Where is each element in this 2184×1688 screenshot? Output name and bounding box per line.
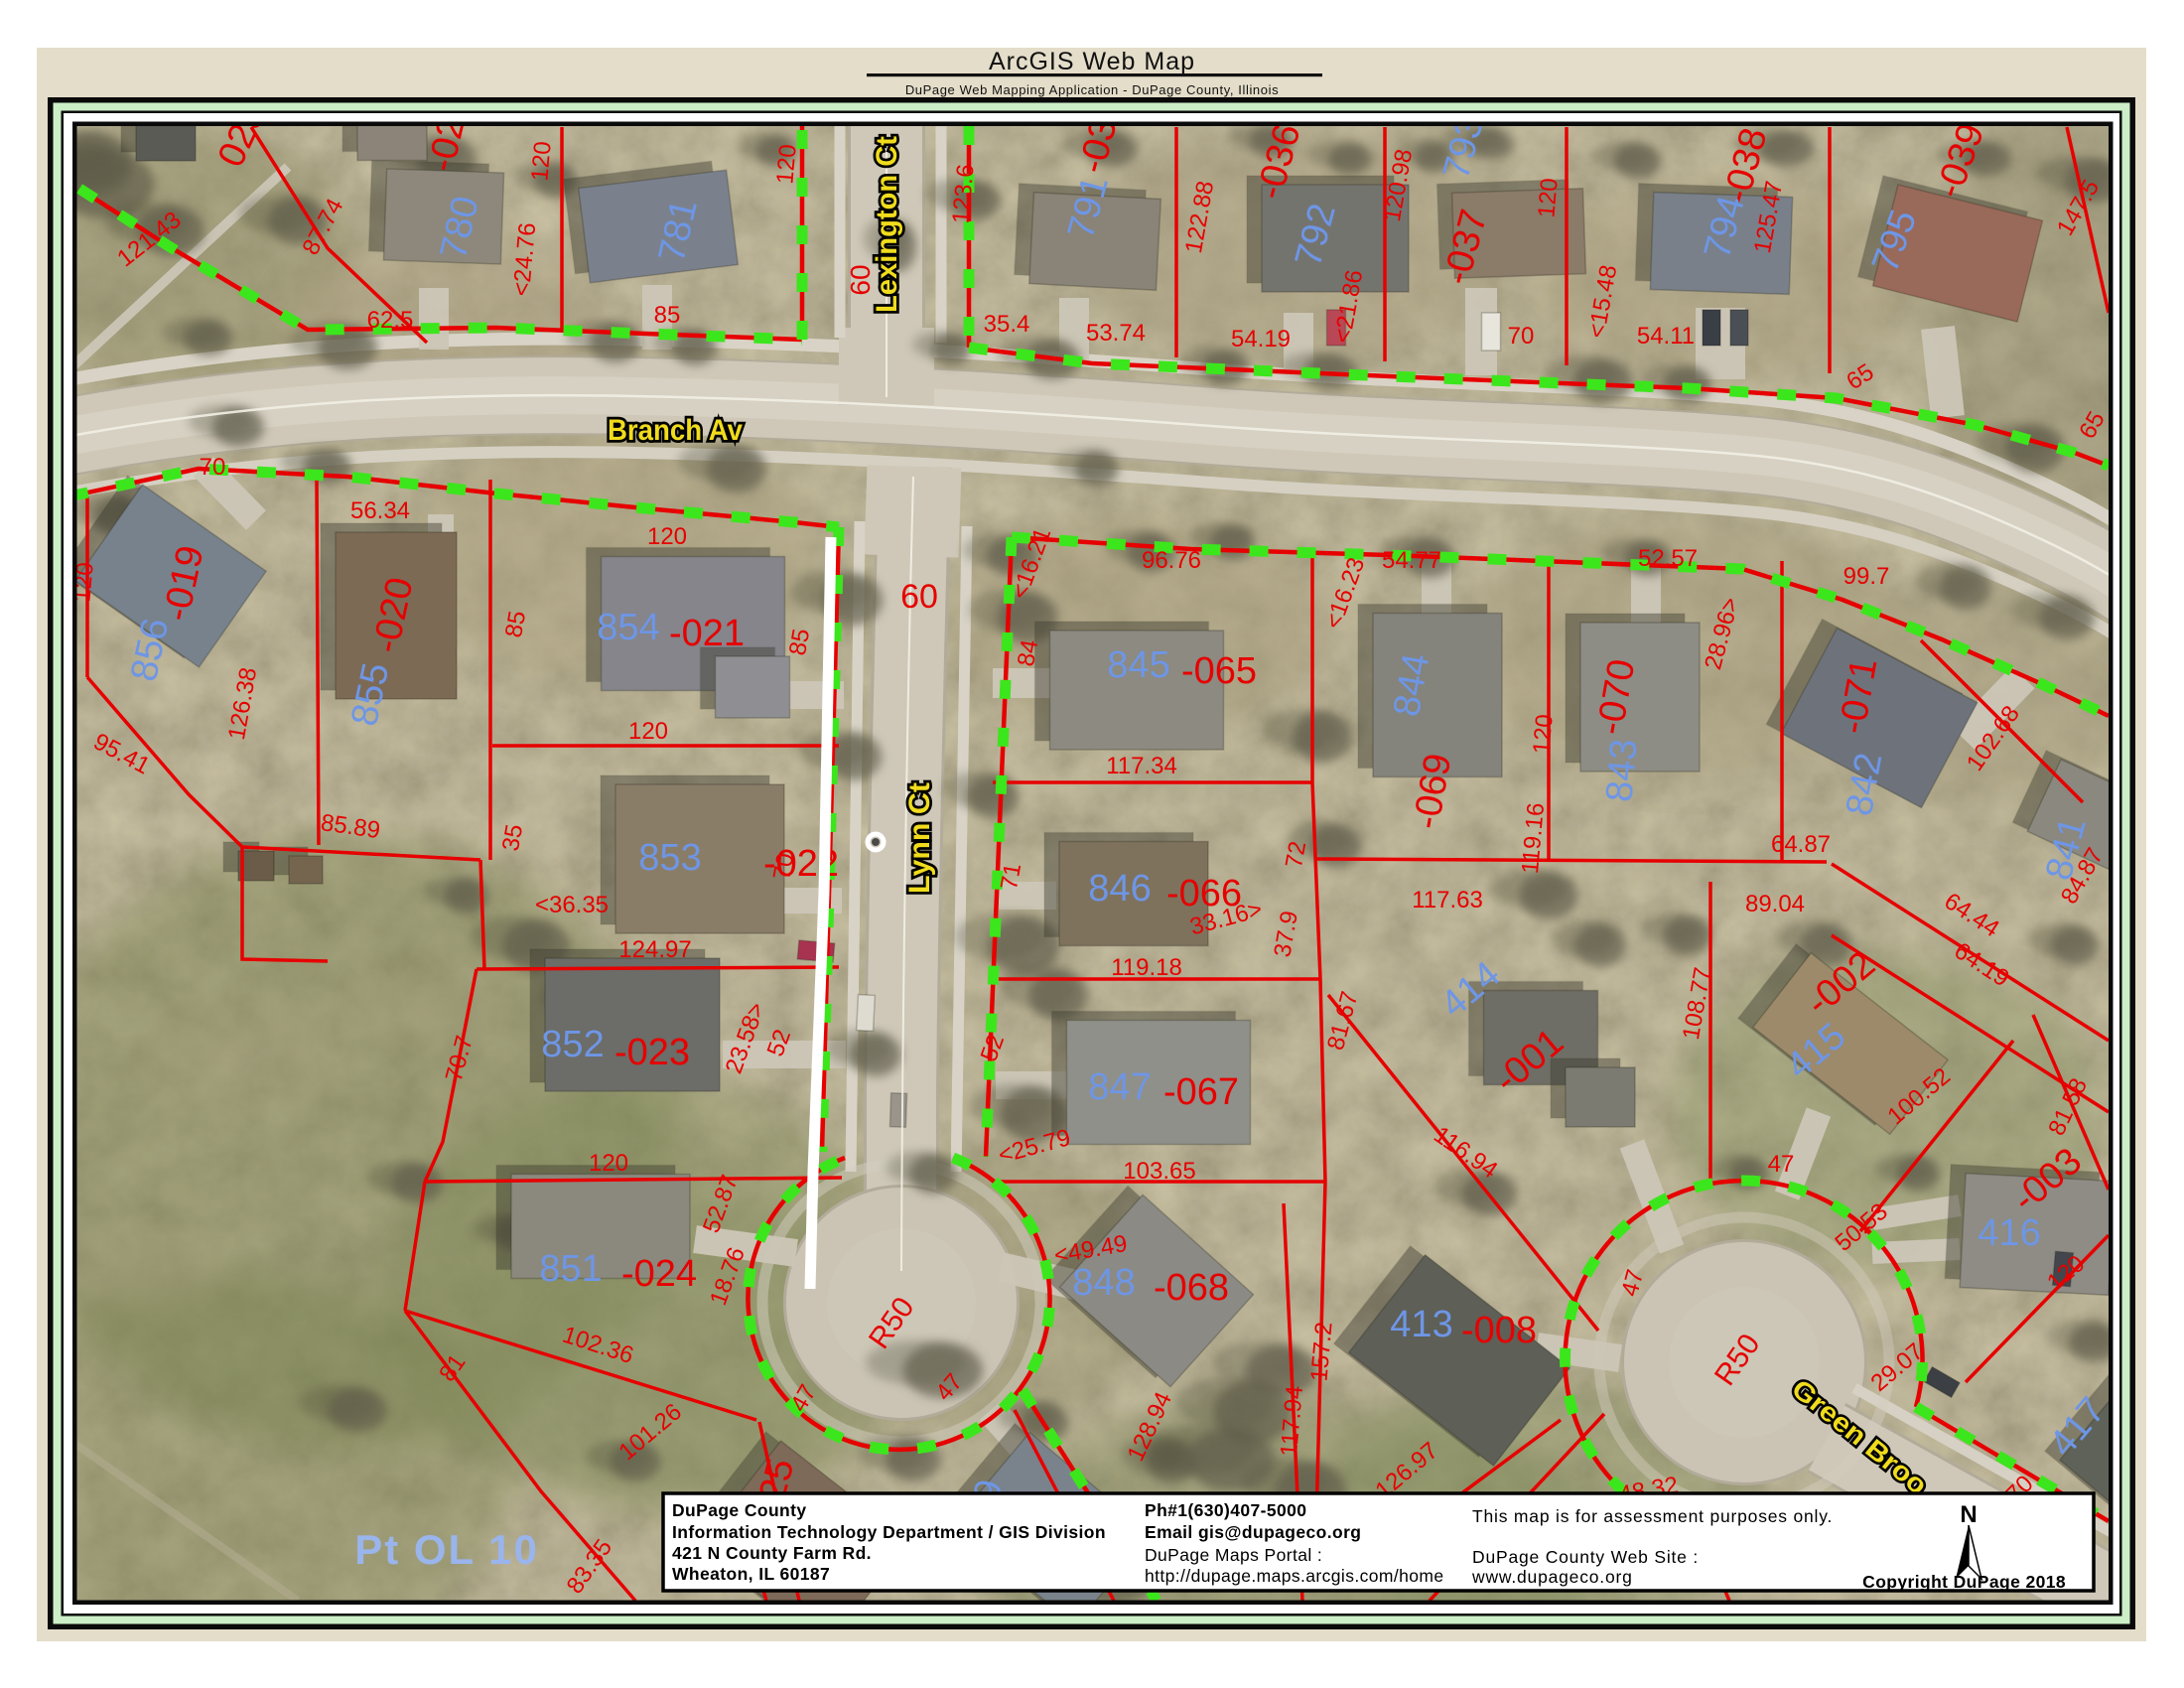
svg-text:89.04: 89.04 xyxy=(1745,891,1805,917)
svg-text:848: 848 xyxy=(1072,1262,1135,1304)
svg-text:Pt OL 10: Pt OL 10 xyxy=(354,1526,539,1573)
svg-text:DuPage Web Mapping Application: DuPage Web Mapping Application - DuPage … xyxy=(905,82,1279,97)
svg-text:84: 84 xyxy=(1013,637,1043,668)
svg-text:54.77: 54.77 xyxy=(1382,547,1441,574)
svg-text:Lexington Ct: Lexington Ct xyxy=(871,136,903,313)
svg-text:854: 854 xyxy=(597,607,659,648)
svg-text:Branch Av: Branch Av xyxy=(608,414,743,447)
svg-text:-066: -066 xyxy=(1166,873,1242,914)
svg-text:70: 70 xyxy=(1508,323,1535,350)
svg-text:120: 120 xyxy=(628,718,668,745)
svg-text:35: 35 xyxy=(497,822,528,853)
svg-text:-065: -065 xyxy=(1181,650,1257,692)
svg-text:Ph#1(630)407-5000: Ph#1(630)407-5000 xyxy=(1145,1500,1306,1520)
svg-text:85: 85 xyxy=(784,627,815,657)
svg-text:DuPage County Web Site :: DuPage County Web Site : xyxy=(1472,1547,1699,1567)
svg-text:120: 120 xyxy=(589,1150,628,1177)
svg-text:http://dupage.maps.arcgis.com/: http://dupage.maps.arcgis.com/home xyxy=(1145,1566,1444,1586)
svg-text:-008: -008 xyxy=(1461,1310,1537,1351)
svg-text:413: 413 xyxy=(1390,1304,1452,1345)
svg-text:-067: -067 xyxy=(1163,1071,1239,1113)
svg-text:120: 120 xyxy=(1533,177,1563,218)
svg-text:157.2: 157.2 xyxy=(1305,1321,1337,1382)
svg-text:416: 416 xyxy=(1978,1212,2040,1254)
svg-text:www.dupageco.org: www.dupageco.org xyxy=(1471,1567,1633,1587)
svg-text:99.7: 99.7 xyxy=(1843,563,1890,590)
svg-text:421 N County Farm Rd.: 421 N County Farm Rd. xyxy=(672,1543,872,1563)
svg-text:103.65: 103.65 xyxy=(1123,1158,1195,1185)
svg-text:85: 85 xyxy=(500,609,531,639)
svg-text:DuPage County: DuPage County xyxy=(672,1500,806,1520)
svg-text:ArcGIS Web Map: ArcGIS Web Map xyxy=(989,48,1195,75)
svg-text:120: 120 xyxy=(771,143,801,185)
svg-text:853: 853 xyxy=(638,837,701,879)
svg-text:-021: -021 xyxy=(669,613,745,654)
svg-text:<36.35: <36.35 xyxy=(535,892,609,918)
svg-text:35.4: 35.4 xyxy=(984,311,1030,338)
svg-text:60: 60 xyxy=(900,578,938,616)
svg-text:852: 852 xyxy=(541,1024,604,1065)
svg-text:120: 120 xyxy=(647,523,687,550)
svg-text:56.34: 56.34 xyxy=(350,497,410,524)
svg-text:851: 851 xyxy=(539,1248,602,1290)
svg-text:843: 843 xyxy=(1598,738,1645,804)
svg-text:123.6: 123.6 xyxy=(947,163,979,224)
svg-text:-024: -024 xyxy=(621,1253,697,1295)
svg-text:54.19: 54.19 xyxy=(1231,326,1291,352)
svg-text:Lynn Ct: Lynn Ct xyxy=(903,782,936,894)
svg-text:124.97: 124.97 xyxy=(618,936,691,963)
svg-text:This map is for assessment pur: This map is for assessment purposes only… xyxy=(1472,1506,1833,1526)
svg-text:72: 72 xyxy=(1281,839,1311,870)
svg-text:N: N xyxy=(1960,1501,1977,1528)
svg-text:845: 845 xyxy=(1107,644,1169,686)
svg-text:64.87: 64.87 xyxy=(1771,831,1831,858)
svg-text:47: 47 xyxy=(1768,1151,1795,1178)
svg-text:120: 120 xyxy=(1528,713,1558,755)
svg-text:-068: -068 xyxy=(1154,1267,1229,1309)
svg-text:120: 120 xyxy=(526,140,556,182)
svg-text:Information Technology Departm: Information Technology Department / GIS … xyxy=(672,1522,1106,1542)
svg-text:70: 70 xyxy=(200,454,226,481)
svg-text:53.74: 53.74 xyxy=(1086,320,1146,347)
svg-text:847: 847 xyxy=(1088,1066,1151,1108)
svg-text:117.63: 117.63 xyxy=(1412,887,1483,914)
svg-text:62.5: 62.5 xyxy=(367,307,414,334)
svg-text:Wheaton, IL 60187: Wheaton, IL 60187 xyxy=(672,1564,830,1584)
svg-text:846: 846 xyxy=(1088,868,1151,910)
svg-text:-023: -023 xyxy=(614,1032,690,1073)
svg-text:DuPage Maps Portal :: DuPage Maps Portal : xyxy=(1145,1545,1322,1565)
svg-text:Copyright DuPage 2018: Copyright DuPage 2018 xyxy=(1862,1572,2066,1592)
svg-text:54.11: 54.11 xyxy=(1637,323,1695,350)
svg-text:Email gis@dupageco.org: Email gis@dupageco.org xyxy=(1145,1522,1361,1542)
svg-text:119.18: 119.18 xyxy=(1111,954,1182,981)
svg-text:71: 71 xyxy=(996,861,1026,892)
svg-text:96.76: 96.76 xyxy=(1142,547,1201,574)
svg-text:85: 85 xyxy=(654,302,681,329)
svg-text:52.57: 52.57 xyxy=(1638,545,1698,572)
svg-text:117.34: 117.34 xyxy=(1106,753,1177,779)
